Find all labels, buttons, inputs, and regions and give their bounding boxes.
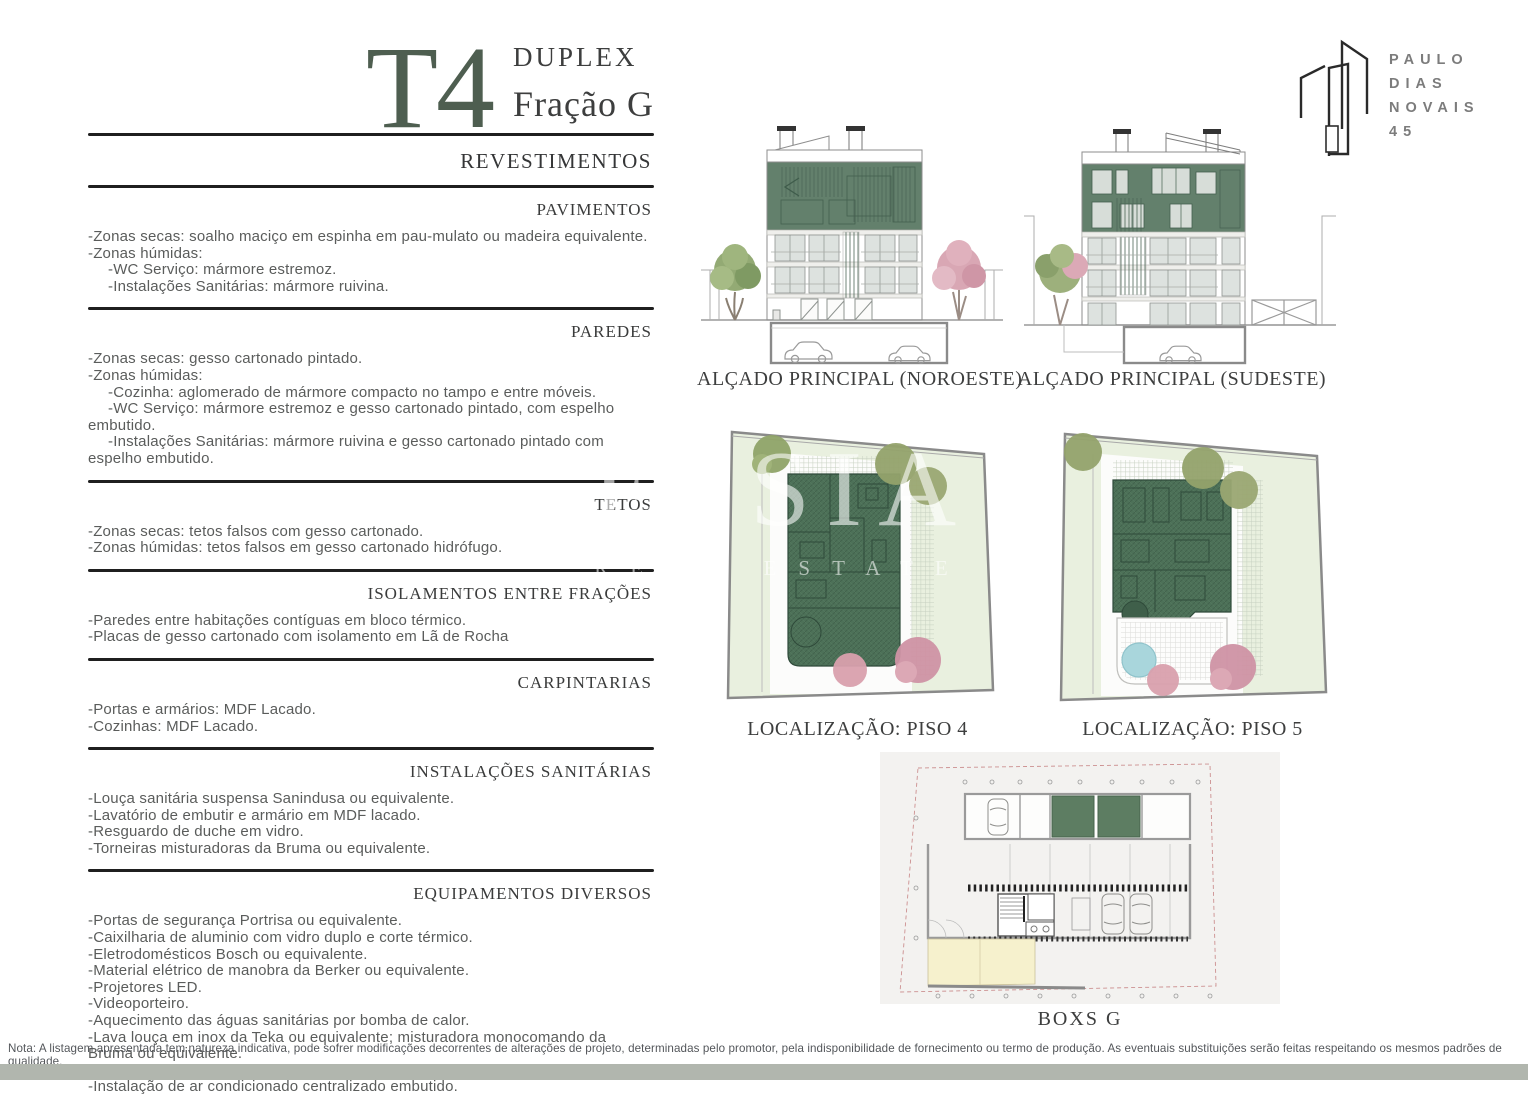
green-facade <box>767 162 922 230</box>
section-items: -Zonas secas: gesso cartonado pintado.-Z… <box>88 351 654 467</box>
section-items: -Zonas secas: tetos falsos com gesso car… <box>88 524 654 557</box>
spec-item: -Placas de gesso cartonado com isolament… <box>88 629 654 646</box>
boxs-label: BOXS G <box>880 1008 1280 1031</box>
green-box-2 <box>1098 796 1140 837</box>
logo-line-2: DIAS <box>1389 72 1480 96</box>
section-heading: ISOLAMENTOS ENTRE FRAÇÕES <box>88 584 652 604</box>
logo-text: PAULO DIAS NOVAIS 45 <box>1389 48 1480 156</box>
logo-line-1: PAULO <box>1389 48 1480 72</box>
section-items: -Portas e armários: MDF Lacado.-Cozinhas… <box>88 702 654 735</box>
spec-item: -Zonas húmidas: <box>88 246 654 263</box>
title-block: T4 DUPLEX Fração G <box>88 26 654 130</box>
logo-line-4: 45 <box>1389 120 1480 144</box>
spec-item: -Instalações Sanitárias: mármore ruivina… <box>88 279 654 296</box>
elevation-sudeste-drawing <box>1020 120 1340 365</box>
windows <box>1088 238 1240 325</box>
spec-item: -Torneiras misturadoras da Bruma ou equi… <box>88 841 654 858</box>
upper-garage-row <box>965 794 1190 839</box>
spec-item: -Instalações Sanitárias: mármore ruivina… <box>88 434 654 467</box>
plan-piso5-label: LOCALIZAÇÃO: PISO 5 <box>1035 718 1350 741</box>
spec-item: -Cozinhas: MDF Lacado. <box>88 719 654 736</box>
stair-core <box>998 894 1054 936</box>
spec-item: -Zonas húmidas: tetos falsos em gesso ca… <box>88 540 654 557</box>
logo-line-3: NOVAIS <box>1389 96 1480 120</box>
boxs-plan-drawing <box>880 752 1280 1004</box>
section-heading: TETOS <box>88 495 652 515</box>
section-items: -Louça sanitária suspensa Sanindusa ou e… <box>88 791 654 857</box>
spec-item: -Paredes entre habitações contíguas em b… <box>88 613 654 630</box>
spec-item: -Instalação de ar condicionado centraliz… <box>88 1079 654 1096</box>
trellis <box>1252 300 1316 325</box>
bottom-band <box>0 1064 1528 1080</box>
spec-item: -Zonas secas: tetos falsos com gesso car… <box>88 524 654 541</box>
apartment-area-green <box>1113 480 1231 627</box>
plan-piso5-drawing <box>1035 422 1350 710</box>
spec-item: -Zonas secas: gesso cartonado pintado. <box>88 351 654 368</box>
spec-item: -Louça sanitária suspensa Sanindusa ou e… <box>88 791 654 808</box>
spec-item: -WC Serviço: mármore estremoz e gesso ca… <box>88 401 654 434</box>
spec-item: -Caixilharia de aluminio com vidro duplo… <box>88 930 654 947</box>
revestimentos-divider <box>88 185 654 188</box>
section-divider <box>88 869 654 872</box>
chimneys <box>1113 129 1221 152</box>
section-divider <box>88 569 654 572</box>
section-heading: CARPINTARIAS <box>88 673 652 693</box>
spec-item: -Eletrodomésticos Bosch ou equivalente. <box>88 947 654 964</box>
spec-item: -WC Serviço: mármore estremoz. <box>88 262 654 279</box>
tree-green-icon <box>710 244 761 320</box>
duplex-label: DUPLEX <box>513 42 654 73</box>
spec-item: -Projetores LED. <box>88 980 654 997</box>
roof-panel <box>1166 133 1240 154</box>
basement-garage <box>771 323 947 363</box>
ground-doors <box>773 299 872 320</box>
spec-item: -Zonas secas: soalho maciço em espinha e… <box>88 229 654 246</box>
elevation-sudeste-label: ALÇADO PRINCIPAL (SUDESTE) <box>1012 368 1332 391</box>
spec-item: -Portas de segurança Portrisa ou equival… <box>88 913 654 930</box>
spec-item: -Portas e armários: MDF Lacado. <box>88 702 654 719</box>
spec-column: T4 DUPLEX Fração G REVESTIMENTOS PAVIMEN… <box>88 26 654 1098</box>
yellow-zone <box>928 939 1035 986</box>
section-items: -Zonas secas: soalho maciço em espinha e… <box>88 229 654 295</box>
basement-garage <box>1064 325 1245 363</box>
section-heading: PAVIMENTOS <box>88 200 652 220</box>
boxs-plan-panel <box>880 752 1280 1004</box>
section-divider <box>88 307 654 310</box>
elevation-noroeste-drawing <box>697 120 1007 365</box>
elevation-noroeste-label: ALÇADO PRINCIPAL (NOROESTE) <box>697 368 1007 391</box>
spec-item: -Aquecimento das águas sanitárias por bo… <box>88 1013 654 1030</box>
fraction-label: Fração G <box>513 83 654 125</box>
section-heading: INSTALAÇÕES SANITÁRIAS <box>88 762 652 782</box>
section-items: -Paredes entre habitações contíguas em b… <box>88 613 654 646</box>
plan-piso4-label: LOCALIZAÇÃO: PISO 4 <box>700 718 1015 741</box>
green-box-1 <box>1052 796 1094 837</box>
spec-item: -Cozinha: aglomerado de mármore compacto… <box>88 385 654 402</box>
tree-pink-icon <box>932 240 986 320</box>
section-divider <box>88 480 654 483</box>
parked-cars-icon <box>1102 894 1152 934</box>
apartment-area-green <box>788 474 900 666</box>
plan-piso4-drawing <box>700 422 1015 710</box>
spec-item: -Videoporteiro. <box>88 996 654 1013</box>
section-divider <box>88 747 654 750</box>
spec-item: -Zonas húmidas: <box>88 368 654 385</box>
section-divider <box>88 658 654 661</box>
tree-mixed-icon <box>1035 244 1088 325</box>
section-heading: EQUIPAMENTOS DIVERSOS <box>88 884 652 904</box>
spec-item: -Resguardo de duche em vidro. <box>88 824 654 841</box>
main-hall <box>928 844 1190 939</box>
spec-item: -Lavatório de embutir e armário em MDF l… <box>88 808 654 825</box>
title-subblock: DUPLEX Fração G <box>513 42 654 125</box>
green-facade <box>1082 164 1245 236</box>
typology-title: T4 <box>366 40 493 137</box>
section-heading: PAREDES <box>88 322 652 342</box>
spec-item: -Material elétrico de manobra da Berker … <box>88 963 654 980</box>
spec-sections: PAVIMENTOS-Zonas secas: soalho maciço em… <box>88 200 654 1096</box>
